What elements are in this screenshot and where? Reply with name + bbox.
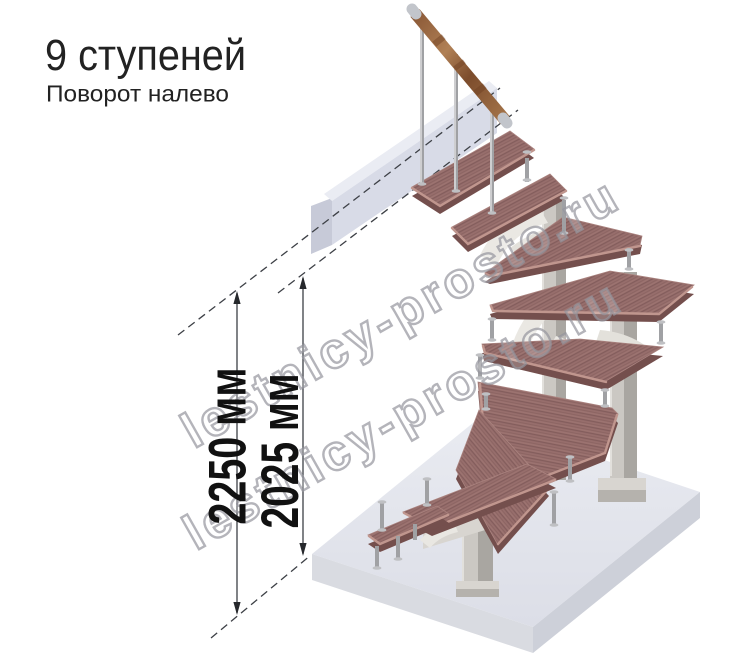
svg-text:2250 мм: 2250 мм bbox=[199, 368, 258, 525]
svg-text:Поворот налево: Поворот налево bbox=[46, 81, 229, 107]
svg-text:2025 мм: 2025 мм bbox=[251, 374, 310, 529]
svg-text:9 ступеней: 9 ступеней bbox=[45, 31, 246, 80]
